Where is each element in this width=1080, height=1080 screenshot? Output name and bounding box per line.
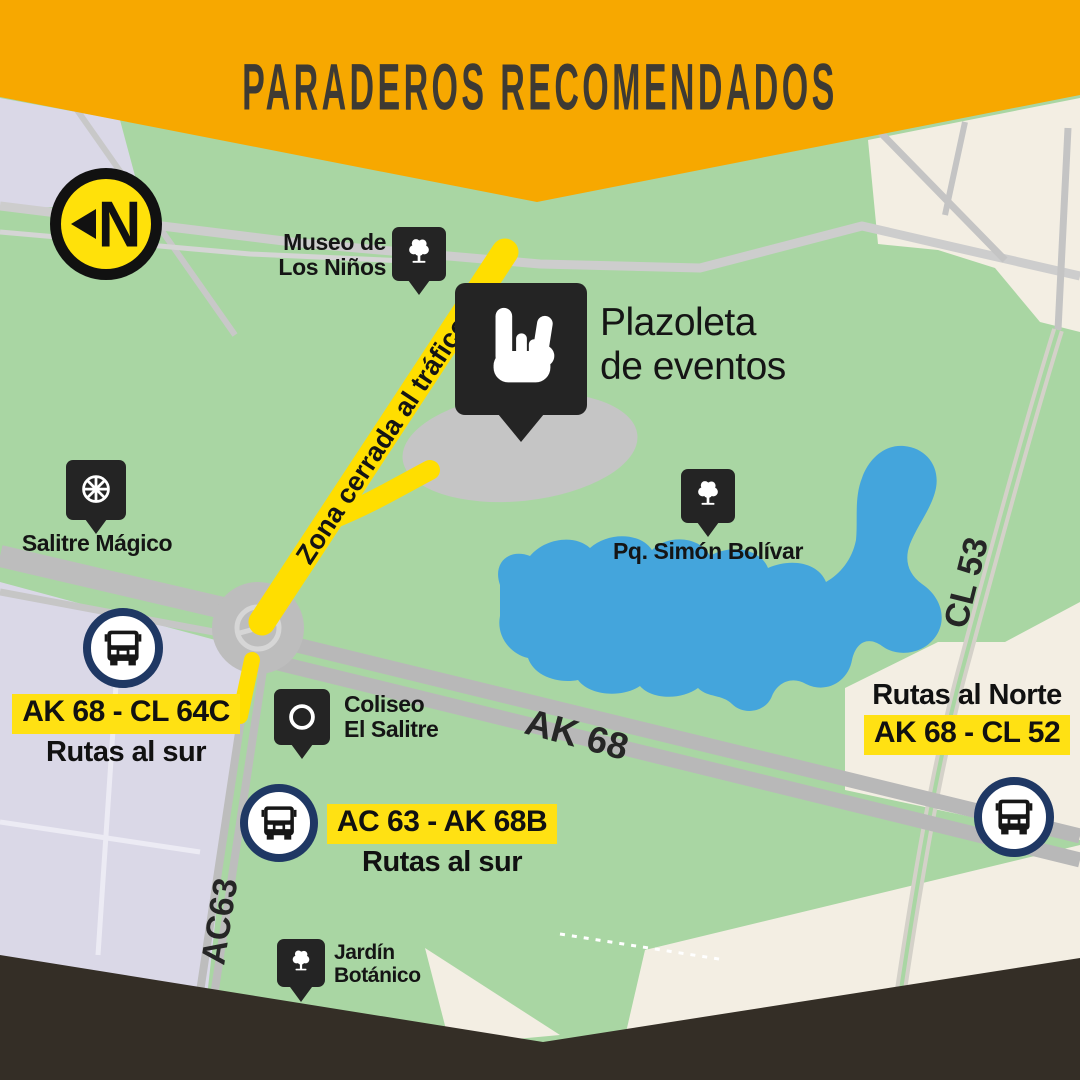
salitre-magico-marker: [66, 460, 126, 520]
museo-label-line1: Museo de: [250, 230, 386, 255]
busstop-north-label: Rutas al Norte AK 68 - CL 52: [848, 679, 1080, 755]
tree-icon: [285, 947, 317, 979]
tree-icon: [400, 235, 438, 273]
coliseo-label: Coliseo El Salitre: [344, 692, 438, 743]
north-badge: N: [50, 168, 162, 280]
busstop-north: [974, 777, 1054, 857]
busstop-north-note: Rutas al Norte: [848, 679, 1080, 712]
north-arrow-icon: [71, 209, 96, 239]
busstop-west-label: AK 68 - CL 64C Rutas al sur: [4, 694, 248, 769]
ferris-wheel-icon: [73, 467, 119, 513]
museo-label: Museo de Los Niños: [250, 230, 386, 281]
north-letter: N: [98, 187, 141, 262]
jardin-label-line2: Botánico: [334, 964, 421, 987]
bus-icon: [258, 802, 300, 844]
bus-icon: [992, 795, 1036, 839]
busstop-north-code: AK 68 - CL 52: [864, 715, 1070, 755]
busstop-south-label: AC 63 - AK 68B Rutas al sur: [322, 804, 562, 879]
plazoleta-label: Plazoleta de eventos: [600, 301, 786, 388]
page-title: PARADEROS RECOMENDADOS: [242, 49, 838, 126]
busstop-west-note: Rutas al sur: [4, 736, 248, 769]
ring-icon: [281, 696, 323, 738]
busstop-west: [83, 608, 163, 688]
simon-bolivar-label: Pq. Simón Bolívar: [608, 539, 808, 564]
busstop-south-code: AC 63 - AK 68B: [327, 804, 557, 844]
plazoleta-label-line2: de eventos: [600, 345, 786, 389]
busstop-west-code: AK 68 - CL 64C: [12, 694, 240, 734]
busstop-south: [240, 784, 318, 862]
coliseo-marker: [274, 689, 330, 745]
jardin-botanico-marker: [277, 939, 325, 987]
jardin-label-line1: Jardín: [334, 941, 421, 964]
simon-bolivar-marker: [681, 469, 735, 523]
coliseo-label-line2: El Salitre: [344, 717, 438, 742]
museo-label-line2: Los Niños: [250, 255, 386, 280]
bus-icon: [101, 626, 145, 670]
infographic: AK 68 AC63 CL 53 Zona cerrada al tráfico…: [0, 0, 1080, 1080]
salitre-magico-label: Salitre Mágico: [8, 531, 186, 556]
header-title-wrap: PARADEROS RECOMENDADOS: [0, 58, 1080, 116]
tree-icon: [689, 477, 727, 515]
plazoleta-label-line1: Plazoleta: [600, 301, 786, 345]
plazoleta-marker: [455, 283, 587, 415]
rock-hand-icon: [472, 300, 570, 398]
jardin-botanico-label: Jardín Botánico: [334, 941, 421, 987]
coliseo-label-line1: Coliseo: [344, 692, 438, 717]
museo-marker: [392, 227, 446, 281]
busstop-south-note: Rutas al sur: [322, 846, 562, 879]
